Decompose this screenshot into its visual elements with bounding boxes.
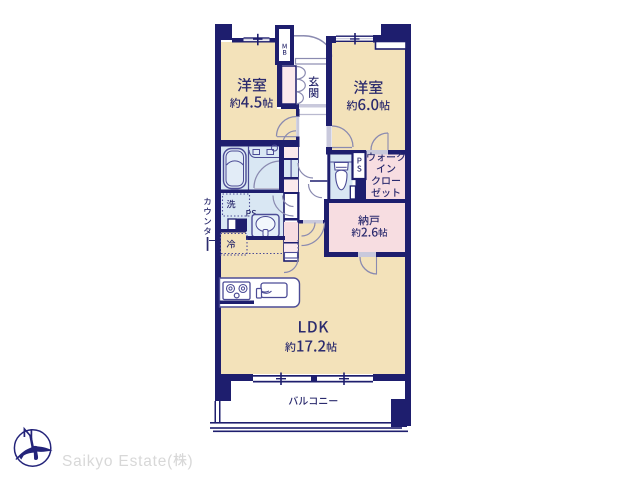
svg-text:): ) [188,453,193,470]
svg-text:Saikyo Estate(: Saikyo Estate( [62,453,173,470]
